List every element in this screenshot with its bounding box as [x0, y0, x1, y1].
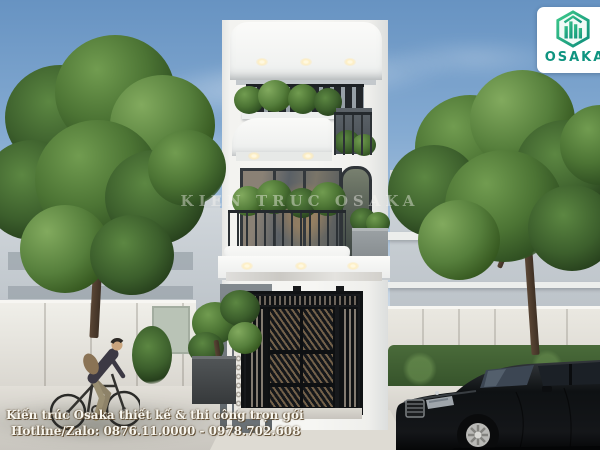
gate-side-panel [339, 307, 358, 409]
concrete-planter [352, 228, 388, 258]
watermark: KIEN TRUC OSAKA [150, 192, 450, 210]
osaka-hexagon-logo-icon [554, 10, 592, 48]
logo-card: OSAKA [537, 7, 600, 73]
downlight [248, 152, 260, 160]
bonsai-foliage [228, 322, 262, 354]
rooftop-parapet [230, 22, 382, 80]
gate-rail [270, 350, 300, 354]
canopy-marble-soffit [226, 272, 382, 281]
third-floor-curved-parapet [232, 118, 332, 156]
caption-block: Kiến trúc Osaka thiết kế & thi công trọn… [6, 407, 304, 439]
gate-transom [246, 296, 358, 305]
downlight [300, 58, 312, 66]
tree-foliage-blob [418, 200, 500, 280]
tree-foliage-blob [90, 215, 174, 295]
balcony-plant [258, 80, 292, 112]
downlight [241, 262, 253, 270]
neighbor-right-cornice [388, 282, 600, 288]
caption-line1: Kiến trúc Osaka thiết kế & thi công trọn… [6, 407, 304, 423]
gate-rail [270, 383, 300, 387]
downlight [302, 152, 314, 160]
gate-rail [303, 350, 333, 354]
downlight [256, 58, 268, 66]
architectural-render: KIEN TRUC OSAKA Kiến trúc Osaka thiết kế… [0, 0, 600, 450]
bonsai-foliage [220, 290, 260, 326]
downlight [347, 262, 359, 270]
bonsai-planter [192, 356, 236, 404]
gate-rail [303, 383, 333, 387]
gate-door-right [301, 307, 335, 409]
luxury-car [396, 358, 600, 450]
downlight [344, 58, 356, 66]
downlight [295, 262, 307, 270]
gate-door-left [268, 307, 302, 409]
third-floor-balcony-railing [334, 112, 372, 155]
logo-text: OSAKA [537, 50, 600, 65]
caption-line2: Hotline/Zalo: 0876.11.0000 - 0978.702.60… [6, 423, 304, 439]
